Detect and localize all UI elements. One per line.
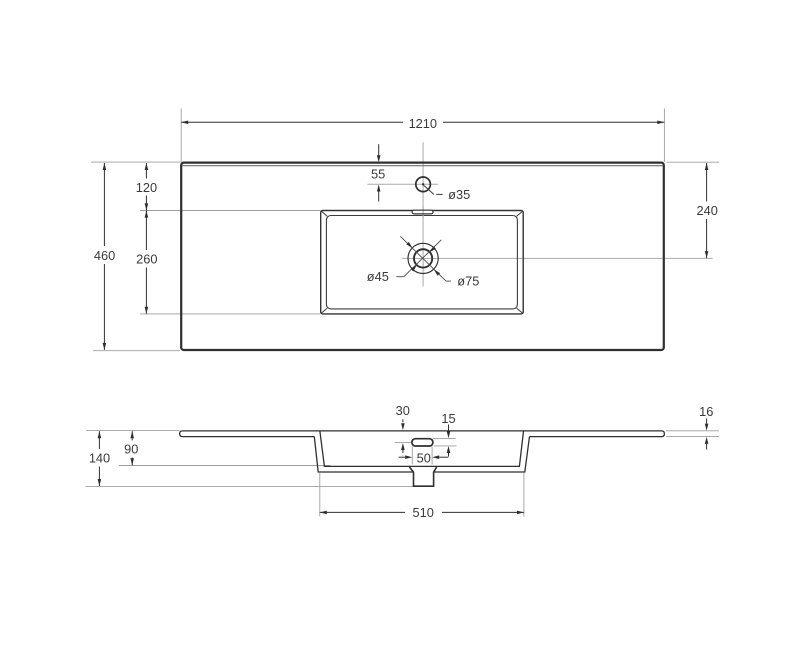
svg-text:460: 460 [94,248,115,263]
svg-text:ø35: ø35 [448,187,470,202]
svg-text:1210: 1210 [409,116,437,131]
svg-text:90: 90 [124,442,138,457]
svg-text:240: 240 [697,203,718,218]
svg-text:ø75: ø75 [457,273,479,288]
svg-text:16: 16 [699,404,713,419]
svg-text:140: 140 [89,450,110,465]
svg-text:ø45: ø45 [367,269,389,284]
svg-text:260: 260 [136,251,157,266]
svg-text:50: 50 [417,451,431,466]
svg-text:55: 55 [371,167,385,182]
svg-text:30: 30 [396,403,410,418]
svg-text:510: 510 [413,505,434,520]
svg-text:15: 15 [441,411,455,426]
svg-text:120: 120 [136,180,157,195]
